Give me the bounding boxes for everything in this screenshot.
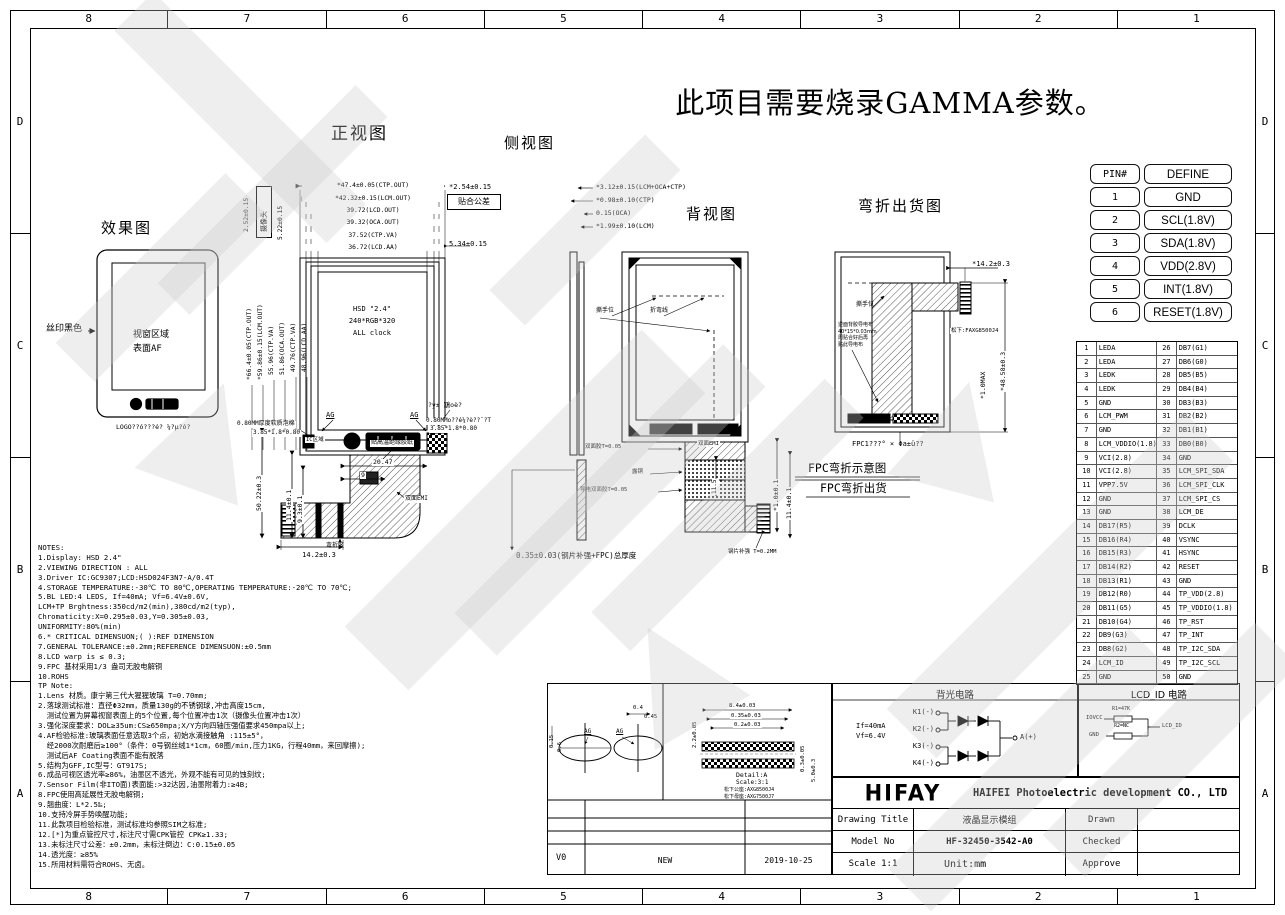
cell: LCM_VDDIO(1.8) <box>1097 438 1157 452</box>
cell: 14 <box>1077 520 1097 534</box>
approve-value <box>1138 853 1239 875</box>
grid-label: 8 <box>10 10 168 28</box>
grid-label: C <box>10 234 30 458</box>
note-line: 9.翘曲度：L*2.5‰; <box>38 800 365 810</box>
cell: 3 <box>1090 233 1140 253</box>
cell: 42 <box>1157 561 1177 575</box>
cell: DB17(R5) <box>1097 520 1157 534</box>
cell: DB1(B1) <box>1177 424 1237 438</box>
cell: DB0(B0) <box>1177 438 1237 452</box>
detail-dim-035: 0.35±0.03 <box>730 713 762 719</box>
hifay-logo: HIFAY <box>833 780 973 805</box>
cell: 33 <box>1157 438 1177 452</box>
connector-pn-label: 松下:FAXG8500J4 <box>950 328 999 334</box>
title-block-header: HIFAY HAIFEI Photoelectric development C… <box>833 778 1239 809</box>
note-line: TP Note: <box>38 681 365 691</box>
cell: LCM_SPI_CLK <box>1177 479 1237 493</box>
steel-stiffener-label: 钢片补强 T=0.2MM <box>728 549 777 555</box>
cell: 36 <box>1157 479 1177 493</box>
grid-label: 4 <box>643 888 801 905</box>
cell: 22 <box>1077 629 1097 643</box>
note-line: 5.结构为GFF,IC型号：GT917S; <box>38 761 365 771</box>
note-line: 5.BL LED:4 LEDS, If=40mA; Vf=6.4V±0.6V, <box>38 592 365 602</box>
dim-ctp-t: *0.98±0.10(CTP) <box>596 197 655 204</box>
grid-rows-left: DCBA <box>10 10 30 905</box>
dim-10max: *1.0MAX <box>980 371 987 400</box>
cell: 16 <box>1077 547 1097 561</box>
pin50-row: 25GND50GND <box>1077 671 1237 685</box>
note-line: 12.[*]为重点管控尺寸,标注尺寸需CPK管控 CPK≥1.33; <box>38 830 365 840</box>
cell: VPP7.5V <box>1097 479 1157 493</box>
define-header: DEFINE <box>1144 164 1232 184</box>
cell: 2 <box>1090 210 1140 230</box>
logo-caption: LOGO??ó???é? ¼?µ?ó? <box>116 424 190 431</box>
cell: 34 <box>1157 452 1177 466</box>
cell: 5 <box>1077 397 1097 411</box>
cell: SCL(1.8V) <box>1144 210 1232 230</box>
note-line: 7.Sensor Film(非ITO面)表面能:>32达因,油墨附着力:≥4B; <box>38 780 365 790</box>
cell: DB3(B3) <box>1177 397 1237 411</box>
pin50-row: 4LEDK29DB4(B4) <box>1077 383 1237 397</box>
grid-label: 5 <box>485 888 643 905</box>
emi-label-front: 双面EMI <box>404 496 429 503</box>
tape-005-label: 双面胶T=0.05 <box>585 444 621 450</box>
fpc-bend-sub2: FPC弯折出货 <box>820 482 887 495</box>
cell: 8 <box>1077 438 1097 452</box>
cell: GND <box>1097 506 1157 520</box>
note-line: 1.Display: HSD 2.4" <box>38 553 365 563</box>
cell: 21 <box>1077 616 1097 630</box>
grid-columns-bottom: 87654321 <box>10 888 1275 905</box>
pin50-row: 8LCM_VDDIO(1.8)33DB0(B0) <box>1077 438 1237 452</box>
cell: GND <box>1144 187 1232 207</box>
note-line: 9.FPC 基材采用1/3 盎司无胶电解铜 <box>38 662 365 672</box>
tear-label-back: 撕手位 <box>596 308 614 315</box>
cell: 50 <box>1157 671 1177 685</box>
dim-9: 9 <box>360 472 366 479</box>
unit-cell: Unit:mm <box>914 853 1066 875</box>
dim-2047: 20.47 <box>372 459 394 466</box>
pin50-row: 15DB16(R4)40VSYNC <box>1077 534 1237 548</box>
tape-label: 贴高温绝缘胶纸 <box>370 440 414 447</box>
cell: DB10(G4) <box>1097 616 1157 630</box>
cell: VDD(2.8V) <box>1144 256 1232 276</box>
cell: 38 <box>1157 506 1177 520</box>
cell: 19 <box>1077 588 1097 602</box>
iovcc-label: IOVCC <box>1086 715 1103 721</box>
fpc-bend-sub1: FPC弯折示意图 <box>808 462 886 475</box>
grid-rows-right: DCBA <box>1255 10 1275 905</box>
note-line: NOTES: <box>38 543 365 553</box>
cell: 24 <box>1077 657 1097 671</box>
note-line: 经2000次耐磨后≥100°（条件：0号钢丝绒1*1cm，60圈/min,压力1… <box>38 741 365 751</box>
detail-ag-1: AG <box>584 729 591 736</box>
k4-label: K4(-) <box>900 759 934 767</box>
detail-dim-015: 0.15 <box>549 735 555 748</box>
note-line: 4.AF检验标准:玻璃表面任意选取3个点，初始水滴接触角 :115±5°， <box>38 731 365 741</box>
cell: 40 <box>1157 534 1177 548</box>
grid-label: C <box>1255 234 1275 458</box>
window-area-label: 视窗区域 <box>133 330 169 340</box>
cell: GND <box>1097 397 1157 411</box>
detail-dim-22: 2.2±0.05 <box>692 722 698 749</box>
pin50-row: 22DB9(G3)47TP_INT <box>1077 629 1237 643</box>
pin-define-row: 5INT(1.8V) <box>1090 279 1233 299</box>
cell: GND <box>1097 493 1157 507</box>
cell: 39 <box>1157 520 1177 534</box>
gamma-banner: 此项目需要烧录GAMMA参数。 <box>640 80 1140 122</box>
cell: TP_RST <box>1177 616 1237 630</box>
dim-ctp-out-w: *47.4±0.05(CTP.OUT) <box>302 182 444 189</box>
revision-description: NEW <box>585 856 745 865</box>
note-line: 测试位置为屏幕视窗表面上的5个位置,每个位置冲击1次（摄像头位置冲击1次） <box>38 711 365 721</box>
cell: LCM_ID <box>1097 657 1157 671</box>
grid-label: A <box>1255 682 1275 905</box>
gnd-label: GND <box>1089 732 1099 738</box>
scale-label: Scale 1:1 <box>833 853 914 875</box>
bend-view-title: 弯折出货图 <box>858 195 943 216</box>
grid-label: 3 <box>801 888 959 905</box>
cell: DB14(R2) <box>1097 561 1157 575</box>
conductive-cloth-note: 逆面背胶导电布40*15*0.03mm周贴合好后再贴此导电布 <box>838 322 877 348</box>
ag-label-left: AG <box>326 411 334 419</box>
title-block-grid: Drawing Title 液晶显示模组 Drawn Model No HF-3… <box>833 809 1239 876</box>
cell: 4 <box>1077 383 1097 397</box>
cell: DCLK <box>1177 520 1237 534</box>
garbled-label: ?y± 鶷oè? <box>428 402 462 409</box>
detail-dim-02: 0.2±0.03 <box>733 722 762 728</box>
cell: 28 <box>1157 369 1177 383</box>
approve-label: Approve <box>1066 853 1138 875</box>
cell: 27 <box>1157 356 1177 370</box>
cell: 2 <box>1077 356 1097 370</box>
dim-114-front: 11.4±0.1 <box>286 489 293 522</box>
dim-115: 11.5 <box>712 479 719 495</box>
emi-label-back: 双面EMI <box>697 441 720 447</box>
dim-ctp-va-w: 37.52(CTP.VA) <box>302 232 444 239</box>
tear-label-bend: 撕手位 <box>856 302 874 309</box>
dim-lcd-aa-h: 48.96(LCD.AA) <box>301 323 308 372</box>
dim-10-back: *1.0±0.1 <box>773 479 780 512</box>
pin50-row: 16DB15(R3)41HSYNC <box>1077 547 1237 561</box>
note-line: 4.STORAGE TEMPERATURE:-30℃ TO 80℃,OPERAT… <box>38 583 365 593</box>
grid-label: D <box>1255 10 1275 234</box>
pin-define-row: 6RESET(1.8V) <box>1090 302 1233 322</box>
cell: SDA(1.8V) <box>1144 233 1232 253</box>
cell: 1 <box>1090 187 1140 207</box>
cell: 37 <box>1157 493 1177 507</box>
grid-columns-top: 87654321 <box>10 10 1275 28</box>
note-line: 13.未标注尺寸公差：±0.2mm，未标注倒边：C:0.15±0.05 <box>38 840 365 850</box>
dim-bond-tolerance: *2.54±0.15 <box>449 183 491 191</box>
pin50-row: 6LCM_PWM31DB2(B2) <box>1077 410 1237 424</box>
pin50-row: 13GND38LCM_DE <box>1077 506 1237 520</box>
pin50-row: 5GND30DB3(B3) <box>1077 397 1237 411</box>
cell: 11 <box>1077 479 1097 493</box>
dim-252: 2.52±0.15 <box>243 198 250 232</box>
ic-area-label: IC区域 <box>305 437 325 443</box>
cell: TP_VDDIO(1.8) <box>1177 602 1237 616</box>
cell: 23 <box>1077 643 1097 657</box>
pin-define-row: 3SDA(1.8V) <box>1090 233 1233 253</box>
grid-label: 4 <box>643 10 801 28</box>
dim-522: 5.22±0.15 <box>277 206 284 240</box>
cell: DB12(R0) <box>1097 588 1157 602</box>
pin50-row: 18DB13(R1)43GND <box>1077 575 1237 589</box>
grid-label: 6 <box>327 10 485 28</box>
dim-oca-out-h: 51.86(OCA.OUT) <box>279 322 286 375</box>
cell: 13 <box>1077 506 1097 520</box>
detail-ag-2: AG <box>616 729 623 736</box>
grid-label: B <box>1255 458 1275 682</box>
dim-ctp-va-h: 55.96(CTP.VA) <box>268 326 275 375</box>
note-line: 6.成品可视区透光率≥86%，油墨区不透光，外观不能有可见的蚀刻纹; <box>38 770 365 780</box>
note-line: UNIFORMITY:80%(min) <box>38 622 365 632</box>
conductive-tape-label: 导电双面胶T=0.05 <box>580 487 627 493</box>
grid-label: 6 <box>327 888 485 905</box>
dim-oca-out-w: 39.32(OCA.OUT) <box>302 219 444 226</box>
panel-spec-line3: ALL clock <box>322 329 422 337</box>
pin-define-row: 4VDD(2.8V) <box>1090 256 1233 276</box>
cell: 30 <box>1157 397 1177 411</box>
note-line: LCM+TP Brghtness:350cd/m2(min),380cd/m2(… <box>38 602 365 612</box>
note-line: 贴此导电布 <box>838 342 877 349</box>
cell: LEDA <box>1097 342 1157 356</box>
notes-block: NOTES:1.Display: HSD 2.4"2.VIEWING DIREC… <box>38 543 365 869</box>
pin50-row: 19DB12(R0)44TP_VDD(2.8) <box>1077 588 1237 602</box>
ag-label-right: AG <box>410 411 418 419</box>
drawing-title-value: 液晶显示模组 <box>914 809 1066 831</box>
cell: DB8(G2) <box>1097 643 1157 657</box>
note-line: 6.* CRITICAL DIMENSUON;( ):REF DIMENSION <box>38 632 365 642</box>
pin-define-table: PIN# DEFINE 1GND2SCL(1.8V)3SDA(1.8V)4VDD… <box>1090 164 1233 325</box>
grid-label: A <box>10 682 30 905</box>
note-line: 8.LCD warp is ≤ 0.3; <box>38 652 365 662</box>
lcd-id-circuit-title: LCD_ID 电路 <box>1078 687 1240 701</box>
dim-lcm-t: *1.99±0.10(LCM) <box>596 223 655 230</box>
cell: 20 <box>1077 602 1097 616</box>
cell: DB15(R3) <box>1097 547 1157 561</box>
note-line: 7.GENERAL TOLERANCE:±0.2mm;REFERENCE DIM… <box>38 642 365 652</box>
detail-dim-03: 0.3±0.05 <box>800 746 806 773</box>
dim-93: 9.3±0.1 <box>297 495 304 524</box>
grid-label: B <box>10 458 30 682</box>
cell: LCM_PWM <box>1097 410 1157 424</box>
pin50-row: 20DB11(G5)45TP_VDDIO(1.8) <box>1077 602 1237 616</box>
dim-534: 5.34±0.15 <box>449 240 487 248</box>
grid-label: 3 <box>801 10 959 28</box>
front-view-title: 正视图 <box>331 119 388 144</box>
cell: TP_INT <box>1177 629 1237 643</box>
note-line: 3.强化深度要求：DOL≥35um:CS≥650mpa;X/Y方向四轴压强值要求… <box>38 721 365 731</box>
cell: 12 <box>1077 493 1097 507</box>
cell: DB11(G5) <box>1097 602 1157 616</box>
silk-print-label: 丝印黑色 <box>46 324 82 334</box>
dim-114-back: 11.4±0.1 <box>786 487 793 520</box>
drawn-value <box>1138 809 1239 831</box>
pin50-table: 1LEDA26DB7(G1)2LEDA27DB6(G0)3LEDK28DB5(B… <box>1076 341 1238 685</box>
drawing-sheet: 87654321 87654321 DCBA DCBA <box>0 0 1285 915</box>
checked-value <box>1138 831 1239 853</box>
pin50-row: 10VCI(2.8)35LCM_SPI_SDA <box>1077 465 1237 479</box>
fold-line-label: 折弯线 <box>650 308 668 315</box>
cell: 6 <box>1090 302 1140 322</box>
cell: TP_I2C_SCL <box>1177 657 1237 671</box>
detail-scale: Scale:3:1 <box>736 780 769 787</box>
drawn-label: Drawn <box>1066 809 1138 831</box>
cell: VCI(2.8) <box>1097 452 1157 466</box>
bond-tolerance-box: 贴合公差 <box>447 194 501 210</box>
grid-label: 2 <box>960 888 1118 905</box>
pin50-row: 23DB8(G2)48TP_I2C_SDA <box>1077 643 1237 657</box>
cell: LEDK <box>1097 383 1157 397</box>
panel-spec-line2: 240*RGB*320 <box>322 317 422 325</box>
foam-label-3: 0.80MMo??é¼?è??ˉ?T <box>425 418 492 425</box>
anode-label: A(+) <box>1020 733 1037 741</box>
grid-label: 5 <box>485 10 643 28</box>
cell: LCM_SPI_CS <box>1177 493 1237 507</box>
dim-5022: 50.22±0.3 <box>256 475 263 512</box>
cell: GND <box>1177 575 1237 589</box>
detail-pn2: 松下母座:AXG7500J7 <box>724 795 774 801</box>
copper-label: 露铜 <box>632 469 643 475</box>
cell: LCM_SPI_SDA <box>1177 465 1237 479</box>
cell: LEDA <box>1097 356 1157 370</box>
cell: DB13(R1) <box>1097 575 1157 589</box>
cell: 4 <box>1090 256 1140 276</box>
cell: 45 <box>1157 602 1177 616</box>
note-line: 3.Driver IC:GC9307;LCD:HSD024F3N7-A/0.4T <box>38 573 365 583</box>
cell: DB7(G1) <box>1177 342 1237 356</box>
checked-label: Checked <box>1066 831 1138 853</box>
grid-label: 8 <box>10 888 168 905</box>
cell: 29 <box>1157 383 1177 397</box>
grid-label: 7 <box>168 888 326 905</box>
model-no-value: HF-32450-3542-A0 <box>914 831 1066 853</box>
revision-date: 2019-10-25 <box>745 856 832 865</box>
panel-spec-line1: HSD "2.4" <box>322 305 422 313</box>
drawing-title-label: Drawing Title <box>833 809 914 831</box>
pin-define-row: 1GND <box>1090 187 1233 207</box>
cell: 47 <box>1157 629 1177 643</box>
fpc-caption: FPC1???° × Φa±ü?? <box>852 440 924 448</box>
cell: GND <box>1097 424 1157 438</box>
pin-define-row: 2SCL(1.8V) <box>1090 210 1233 230</box>
pin50-row: 14DB17(R5)39DCLK <box>1077 520 1237 534</box>
cell: VSYNC <box>1177 534 1237 548</box>
note-line: 测试后AF Coating表面不能有脱落 <box>38 751 365 761</box>
backlight-voltage: Vf=6.4V <box>856 732 886 740</box>
title-block: HIFAY HAIFEI Photoelectric development C… <box>832 777 1240 875</box>
pin50-row: 1LEDA26DB7(G1) <box>1077 342 1237 356</box>
cell: LCM_DE <box>1177 506 1237 520</box>
back-view-title: 背视图 <box>686 203 737 224</box>
cell: DB9(G3) <box>1097 629 1157 643</box>
dim-ctp-va2-h: 49.76(CTP.VA) <box>290 323 297 372</box>
r1-label: R1=47K <box>1112 707 1130 713</box>
grid-label: D <box>10 10 30 234</box>
grid-label: 7 <box>168 10 326 28</box>
pin-header: PIN# <box>1090 164 1140 184</box>
dim-ctp-out-h: *66.4±0.05(CTP.OUT) <box>246 308 253 380</box>
dim-4858: *48.58±0.3 <box>1000 351 1007 392</box>
cell: 32 <box>1157 424 1177 438</box>
side-view-title: 侧视图 <box>504 132 555 153</box>
cell: 5 <box>1090 279 1140 299</box>
cell: 1 <box>1077 342 1097 356</box>
cell: DB6(G0) <box>1177 356 1237 370</box>
pin50-row: 24LCM_ID49TP_I2C_SCL <box>1077 657 1237 671</box>
cell: 41 <box>1157 547 1177 561</box>
foam-label-1: 0.80MM厚度软质泡棉 <box>236 421 296 428</box>
note-line: 2.落球测试标准：直径Φ32mm，质量130g的不锈钢球,冲击高度15cm, <box>38 701 365 711</box>
cell: 17 <box>1077 561 1097 575</box>
model-no-label: Model No <box>833 831 914 853</box>
detail-revision-box <box>547 683 832 875</box>
dim-lcd-aa-w: 36.72(LCD.AA) <box>302 244 444 251</box>
k2-label: K2(-) <box>900 725 934 733</box>
cell: 46 <box>1157 616 1177 630</box>
cell: 7 <box>1077 424 1097 438</box>
cell: GND <box>1097 671 1157 685</box>
cell: 18 <box>1077 575 1097 589</box>
lcd-id-out-label: LCD_ID <box>1162 723 1182 729</box>
note-line: 14.透光度：≥85% <box>38 850 365 860</box>
pin50-row: 11VPP7.5V36LCM_SPI_CLK <box>1077 479 1237 493</box>
grid-label: 2 <box>960 10 1118 28</box>
cell: 6 <box>1077 410 1097 424</box>
cell: 15 <box>1077 534 1097 548</box>
company-name: HAIFEI Photoelectric development CO., LT… <box>973 787 1239 799</box>
detail-dim-84: 8.4±0.03 <box>728 703 757 709</box>
note-line: 15.所用材料需符合ROHS、无卤。 <box>38 860 365 870</box>
cell: 35 <box>1157 465 1177 479</box>
dim-oca-t: 0.15(OCA) <box>596 210 631 217</box>
cell: GND <box>1177 452 1237 466</box>
note-line: 8.FPC使用高延展性无胶电解铜; <box>38 790 365 800</box>
note-line: Chromaticity:X=0.295±0.03,Y=0.305±0.03, <box>38 612 365 622</box>
pin50-row: 21DB10(G4)46TP_RST <box>1077 616 1237 630</box>
dim-stack-total: *3.12±0.15(LCM+OCA+CTP) <box>596 184 686 191</box>
cell: LEDK <box>1097 369 1157 383</box>
cell: 26 <box>1157 342 1177 356</box>
pin50-row: 9VCI(2.8)34GND <box>1077 452 1237 466</box>
pin50-row: 2LEDA27DB6(G0) <box>1077 356 1237 370</box>
cell: 48 <box>1157 643 1177 657</box>
k3-label: K3(-) <box>900 742 934 750</box>
r2-label: R2=NC <box>1114 724 1129 730</box>
detail-dim-06: 0.6 <box>557 742 563 752</box>
cell: 31 <box>1157 410 1177 424</box>
dim-total-thickness: 0.35±0.03(钢片补强+FPC)总厚度 <box>516 552 636 561</box>
detail-dim-045: 0.45 <box>644 714 657 720</box>
grid-label: 1 <box>1118 888 1275 905</box>
note-line: 2.VIEWING DIRECTION : ALL <box>38 563 365 573</box>
detail-dim-04: 0.4 <box>633 705 643 711</box>
cell: 49 <box>1157 657 1177 671</box>
cell: VCI(2.8) <box>1097 465 1157 479</box>
cell: 44 <box>1157 588 1177 602</box>
cell: INT(1.8V) <box>1144 279 1232 299</box>
pin50-row: 7GND32DB1(B1) <box>1077 424 1237 438</box>
foam-label-4: 3.85*1.8*0.80 <box>429 426 478 433</box>
cell: 3 <box>1077 369 1097 383</box>
dim-lcm-out-w: *42.32±0.15(LCM.OUT) <box>302 195 444 202</box>
cell: TP_I2C_SDA <box>1177 643 1237 657</box>
cell: 9 <box>1077 452 1097 466</box>
cell: 25 <box>1077 671 1097 685</box>
backlight-current: If=40mA <box>856 722 886 730</box>
